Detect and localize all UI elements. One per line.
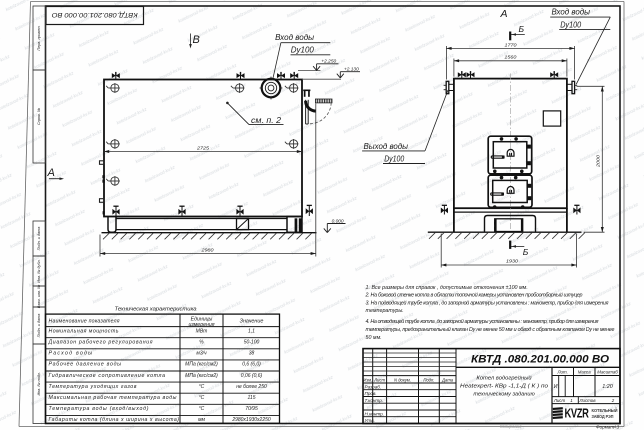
svg-text:Наименование показателя: Наименование показателя (49, 318, 120, 324)
svg-text:Расход воды: Расход воды (49, 351, 93, 357)
svg-text:50-100: 50-100 (244, 340, 260, 346)
svg-text:И: И (554, 384, 558, 390)
svg-text:Вход воды: Вход воды (275, 33, 314, 42)
svg-text:1930: 1930 (506, 259, 518, 265)
svg-text:температуры, предохранительны: температуры, предохранительный клапан Dу… (366, 326, 615, 333)
svg-text:А: А (500, 8, 508, 20)
svg-text:КОТЕЛЬНЫЙ: КОТЕЛЬНЫЙ (592, 408, 618, 413)
svg-text:Копировал: Копировал (500, 424, 522, 429)
svg-text:Выход воды: Выход воды (364, 141, 409, 151)
svg-text:МВт: МВт (196, 328, 208, 334)
svg-text:Подп.: Подп. (423, 377, 434, 382)
svg-text:Б: Б (519, 24, 525, 34)
svg-text:Температура воды (вход/выход): Температура воды (вход/выход) (49, 406, 149, 412)
svg-text:1:20: 1:20 (602, 384, 613, 390)
svg-text:2. На боковой стенке котла в: 2. На боковой стенке котла в области топ… (365, 292, 583, 299)
svg-text:КВТД .080.201.00.000 ВО: КВТД .080.201.00.000 ВО (471, 354, 609, 366)
svg-text:Номинальная мощность: Номинальная мощность (49, 328, 119, 334)
svg-text:В: В (193, 34, 200, 46)
svg-text:Heatexpert- КВр -1,1-Д ( К ): Heatexpert- КВр -1,1-Д ( К ) по (460, 384, 548, 390)
svg-text:3. На подводящей трубе котла: 3. На подводящей трубе котла , до запорн… (366, 299, 609, 306)
svg-text:Значение: Значение (240, 318, 264, 324)
svg-text:2980: 2980 (200, 247, 213, 253)
svg-text:Гидравлическое сопротивление к: Гидравлическое сопротивление котла (49, 373, 166, 379)
svg-text:Масштаб: Масштаб (597, 369, 618, 374)
svg-text:70/95: 70/95 (245, 406, 258, 412)
svg-text:Листов: Листов (579, 398, 597, 403)
svg-text:%: % (199, 340, 204, 346)
svg-text:Инв. № подл.: Инв. № подл. (37, 372, 41, 396)
svg-text:температуры.: температуры. (366, 308, 404, 314)
svg-text:Подп. и дата: Подп. и дата (37, 314, 41, 338)
svg-text:Лист: Лист (553, 398, 566, 403)
svg-text:2725: 2725 (196, 145, 209, 151)
svg-text:Взам. инв. №: Взам. инв. № (37, 285, 41, 308)
svg-text:Перв. примен.: Перв. примен. (37, 25, 41, 50)
svg-text:Н.контр.: Н.контр. (365, 411, 384, 416)
svg-text:Dy100: Dy100 (560, 21, 582, 30)
svg-text:мм: мм (198, 417, 205, 423)
svg-text:Разраб.: Разраб. (365, 384, 382, 389)
svg-text:Дата: Дата (441, 377, 454, 382)
svg-text:115: 115 (248, 395, 256, 401)
svg-text:38: 38 (249, 351, 255, 357)
svg-text:Рабочее давление воды: Рабочее давление воды (49, 362, 122, 368)
svg-text:измерения: измерения (189, 322, 215, 328)
svg-text:4. На отводящей трубе котла ,: 4. На отводящей трубе котла ,до запорной… (366, 318, 599, 325)
svg-text:Лист: Лист (373, 377, 385, 382)
svg-text:°С: °С (199, 395, 205, 401)
svg-text:Dy100: Dy100 (384, 155, 404, 164)
svg-text:Максимальная рабочая температу: Максимальная рабочая температура воды (49, 395, 177, 401)
svg-text:Dy100: Dy100 (291, 45, 315, 54)
svg-text:Б: Б (523, 247, 529, 257)
svg-text:+2.250: +2.250 (321, 59, 336, 65)
svg-text:Котел водогрейный: Котел водогрейный (476, 375, 532, 382)
svg-text:Инв. № дубл.: Инв. № дубл. (37, 259, 41, 282)
svg-text:А: А (47, 167, 55, 179)
svg-text:0,06 (0,6): 0,06 (0,6) (241, 373, 263, 379)
svg-text:Формат: Формат (596, 424, 614, 429)
svg-text:Вход воды: Вход воды (552, 8, 591, 17)
svg-text:Техническая характеристика: Техническая характеристика (115, 307, 198, 313)
svg-text:МПа (кгс/см2): МПа (кгс/см2) (185, 362, 218, 368)
svg-text:КВТД.080.201.00.000 ВО: КВТД.080.201.00.000 ВО (52, 11, 138, 18)
svg-text:+2.130: +2.130 (344, 67, 359, 73)
svg-text:0,6 (6,0): 0,6 (6,0) (242, 362, 261, 368)
svg-text:Масса: Масса (578, 369, 592, 374)
svg-text:м3/ч: м3/ч (196, 351, 207, 357)
svg-text:Лит.: Лит. (557, 369, 568, 374)
svg-text:2000: 2000 (596, 155, 602, 168)
svg-text:Утв.: Утв. (365, 418, 375, 423)
svg-text:ЗАВОД РЭП: ЗАВОД РЭП (592, 414, 614, 419)
svg-text:1770: 1770 (505, 42, 517, 48)
svg-text:50 мм.: 50 мм. (366, 335, 382, 341)
svg-text:А3: А3 (613, 424, 620, 429)
svg-text:2980х1930х2250: 2980х1930х2250 (231, 417, 271, 423)
svg-text:1,1: 1,1 (248, 328, 255, 334)
svg-text:N докум.: N докум. (394, 377, 411, 382)
svg-text:см. п. 2: см. п. 2 (251, 116, 281, 125)
svg-text:Т.контр.: Т.контр. (365, 398, 384, 403)
svg-text:Подп. и дата: Подп. и дата (37, 227, 41, 251)
svg-text:°С: °С (199, 406, 205, 412)
svg-text:KVZR: KVZR (565, 406, 590, 421)
svg-text:не более 250: не более 250 (236, 384, 267, 390)
svg-text:Диапазон рабочего регулировани: Диапазон рабочего регулирования (48, 340, 153, 346)
svg-text:Справ. №: Справ. № (37, 108, 41, 125)
svg-text:2: 2 (611, 398, 615, 403)
svg-text:0.000: 0.000 (332, 218, 344, 224)
svg-text:Изм.: Изм. (363, 377, 372, 382)
svg-text:Габариты котла (длина х ширина: Габариты котла (длина х ширина х высота) (49, 417, 180, 423)
svg-text:Температура уходящих газов: Температура уходящих газов (49, 384, 137, 390)
svg-text:°С: °С (199, 384, 205, 390)
svg-text:Пров.: Пров. (365, 391, 377, 396)
svg-text:техническому заданию: техническому заданию (473, 392, 535, 398)
svg-text:МПа (кгс/см2): МПа (кгс/см2) (185, 373, 218, 379)
svg-text:1560: 1560 (504, 55, 516, 61)
svg-text:1. Все размеры для справок ,: 1. Все размеры для справок , допустимые … (366, 285, 528, 291)
